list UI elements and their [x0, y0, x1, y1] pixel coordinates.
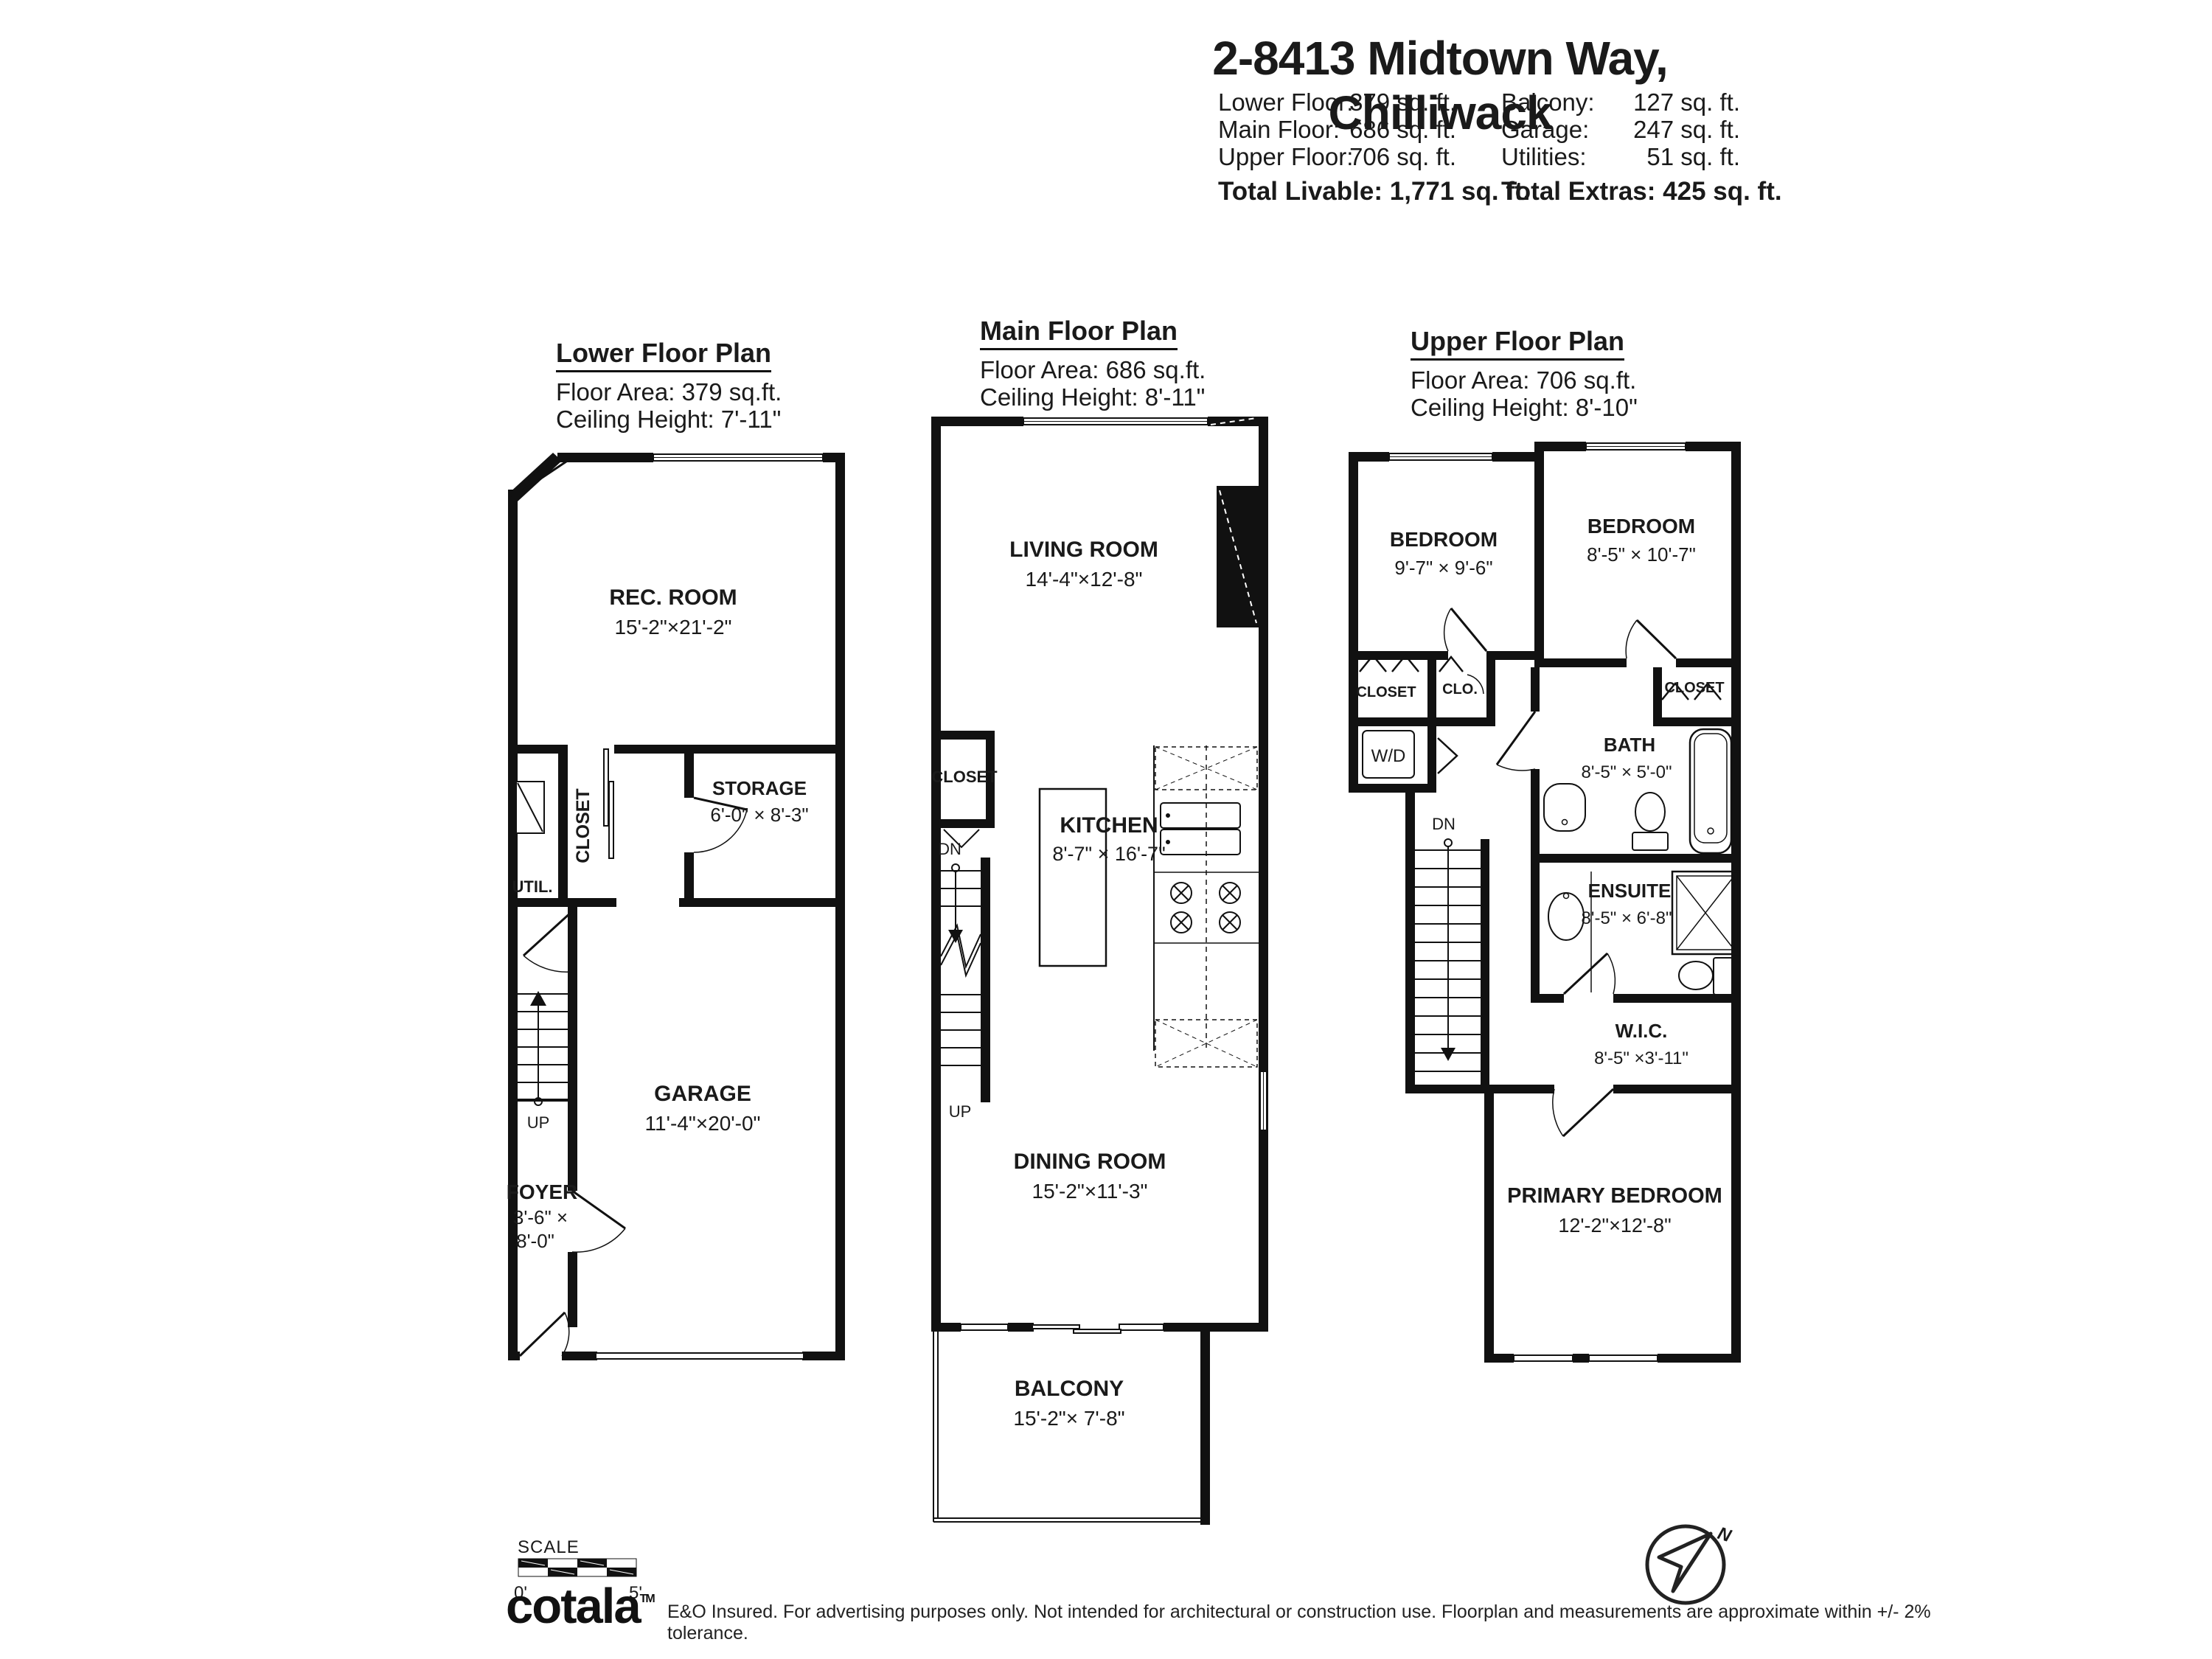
bath-label: BATH: [1604, 734, 1655, 756]
upper-stairs: [1415, 839, 1481, 1071]
main-room-labels: LIVING ROOM 14'-4"×12'-8" CLOSET DN KITC…: [931, 538, 1166, 1430]
kitchen-dims: 8'-7" × 16'-7": [1052, 843, 1165, 865]
wic-dims: 8'-5" ×3'-11": [1594, 1048, 1688, 1068]
dining-room-dims: 15'-2"×11'-3": [1032, 1180, 1148, 1203]
lower-room-labels: REC. ROOM 15'-2"×21'-2" CLOSET STORAGE 6…: [507, 585, 809, 1252]
foyer-dims-2: 8'-0": [516, 1230, 554, 1252]
up-label: UP: [949, 1102, 972, 1121]
bedroom2-label: BEDROOM: [1587, 515, 1695, 538]
closet-label: CLOSET: [931, 768, 998, 786]
closet2-label: CLOSET: [1664, 680, 1724, 696]
lower-floor-ceiling: Ceiling Height: 7'-11": [556, 406, 782, 433]
wic-label: W.I.C.: [1615, 1020, 1668, 1042]
upper-walls: [1349, 442, 1741, 1363]
util-label: UTIL.: [512, 877, 553, 896]
main-floor-heading: Main Floor Plan Floor Area: 686 sq.ft. C…: [980, 316, 1206, 411]
bedroom2-dims: 8'-5" × 10'-7": [1587, 543, 1696, 566]
disclaimer-text: E&O Insured. For advertising purposes on…: [667, 1601, 1965, 1644]
bedroom1-label: BEDROOM: [1390, 528, 1498, 551]
kitchen-label: KITCHEN: [1060, 813, 1158, 838]
area-value: 686 sq. ft.: [1305, 116, 1456, 144]
total-livable-label: Total Livable:: [1218, 177, 1382, 206]
total-extras-value: 425 sq. ft.: [1663, 177, 1781, 206]
main-kitchen-fixtures: [1040, 745, 1259, 1067]
cotala-logo-text: cotala: [506, 1579, 640, 1634]
balcony-dims: 15'-2"× 7'-8": [1013, 1407, 1124, 1430]
scale-bar-segments: [518, 1559, 636, 1576]
compass-icon: [1647, 1526, 1724, 1603]
ensuite-label: ENSUITE: [1588, 880, 1672, 902]
upper-floor-plan-drawing: BEDROOM 9'-7" × 9'-6" BEDROOM 8'-5" × 10…: [1340, 437, 1750, 1370]
closet1-label: CLOSET: [1356, 684, 1416, 700]
garage-label: GARAGE: [654, 1082, 751, 1106]
bedroom1-dims: 9'-7" × 9'-6": [1394, 557, 1492, 579]
storage-dims: 6'-0" × 8'-3": [710, 804, 808, 826]
garage-dims: 11'-4"×20'-0": [645, 1112, 761, 1135]
primary-bedroom-dims: 12'-2"×12'-8": [1558, 1214, 1671, 1237]
lower-floor-area: Floor Area: 379 sq.ft.: [556, 378, 782, 406]
living-room-dims: 14'-4"×12'-8": [1025, 568, 1142, 591]
area-value: 706 sq. ft.: [1305, 143, 1456, 171]
dn-label: DN: [1432, 815, 1455, 833]
up-label: UP: [527, 1113, 550, 1132]
area-value: 379 sq. ft.: [1305, 88, 1456, 116]
cotala-logo: cotalaTM: [506, 1578, 654, 1635]
ensuite-dims: 8'-5" × 6'-8": [1582, 908, 1672, 928]
rec-room-dims: 15'-2"×21'-2": [614, 616, 731, 639]
main-stairs: [941, 829, 981, 1065]
foyer-dims-1: 3'-6" ×: [513, 1206, 568, 1228]
total-livable: Total Livable: 1,771 sq. ft.: [1218, 177, 1530, 206]
dining-room-label: DINING ROOM: [1014, 1150, 1166, 1174]
living-room-label: LIVING ROOM: [1009, 538, 1158, 562]
primary-bedroom-label: PRIMARY BEDROOM: [1507, 1184, 1722, 1208]
storage-label: STORAGE: [712, 777, 807, 799]
lower-floor-title: Lower Floor Plan: [556, 338, 771, 372]
total-extras: Total Extras: 425 sq. ft.: [1501, 177, 1782, 206]
area-value: 247 sq. ft.: [1593, 116, 1740, 144]
dn-label: DN: [938, 840, 961, 858]
closet-label: CLOSET: [573, 788, 594, 863]
main-floor-ceiling: Ceiling Height: 8'-11": [980, 383, 1206, 411]
lower-floor-heading: Lower Floor Plan Floor Area: 379 sq.ft. …: [556, 338, 782, 433]
main-floor-title: Main Floor Plan: [980, 316, 1178, 350]
area-label: Garage:: [1501, 116, 1589, 144]
upper-floor-heading: Upper Floor Plan Floor Area: 706 sq.ft. …: [1411, 326, 1638, 421]
foyer-label: FOYER: [507, 1180, 577, 1203]
area-label: Balcony:: [1501, 88, 1595, 116]
compass-north-label: N: [1715, 1523, 1733, 1546]
balcony-label: BALCONY: [1015, 1377, 1124, 1401]
upper-floor-title: Upper Floor Plan: [1411, 326, 1624, 361]
upper-floor-ceiling: Ceiling Height: 8'-10": [1411, 394, 1638, 421]
bath-dims: 8'-5" × 5'-0": [1582, 762, 1672, 782]
rec-room-label: REC. ROOM: [609, 585, 737, 610]
upper-floor-area: Floor Area: 706 sq.ft.: [1411, 366, 1638, 394]
area-label: Utilities:: [1501, 143, 1587, 171]
compass: N: [1637, 1513, 1740, 1616]
wd-label: W/D: [1371, 746, 1406, 766]
area-value: 127 sq. ft.: [1593, 88, 1740, 116]
area-value: 51 sq. ft.: [1593, 143, 1740, 171]
cotala-logo-tm: TM: [640, 1593, 654, 1605]
main-floor-plan-drawing: LIVING ROOM 14'-4"×12'-8" CLOSET DN KITC…: [923, 415, 1273, 1532]
lower-stairs: [518, 991, 568, 1105]
clo-label: CLO.: [1442, 681, 1478, 698]
main-floor-area: Floor Area: 686 sq.ft.: [980, 356, 1206, 383]
lower-floor-plan-drawing: REC. ROOM 15'-2"×21'-2" CLOSET STORAGE 6…: [500, 448, 854, 1366]
total-extras-label: Total Extras:: [1501, 177, 1655, 206]
